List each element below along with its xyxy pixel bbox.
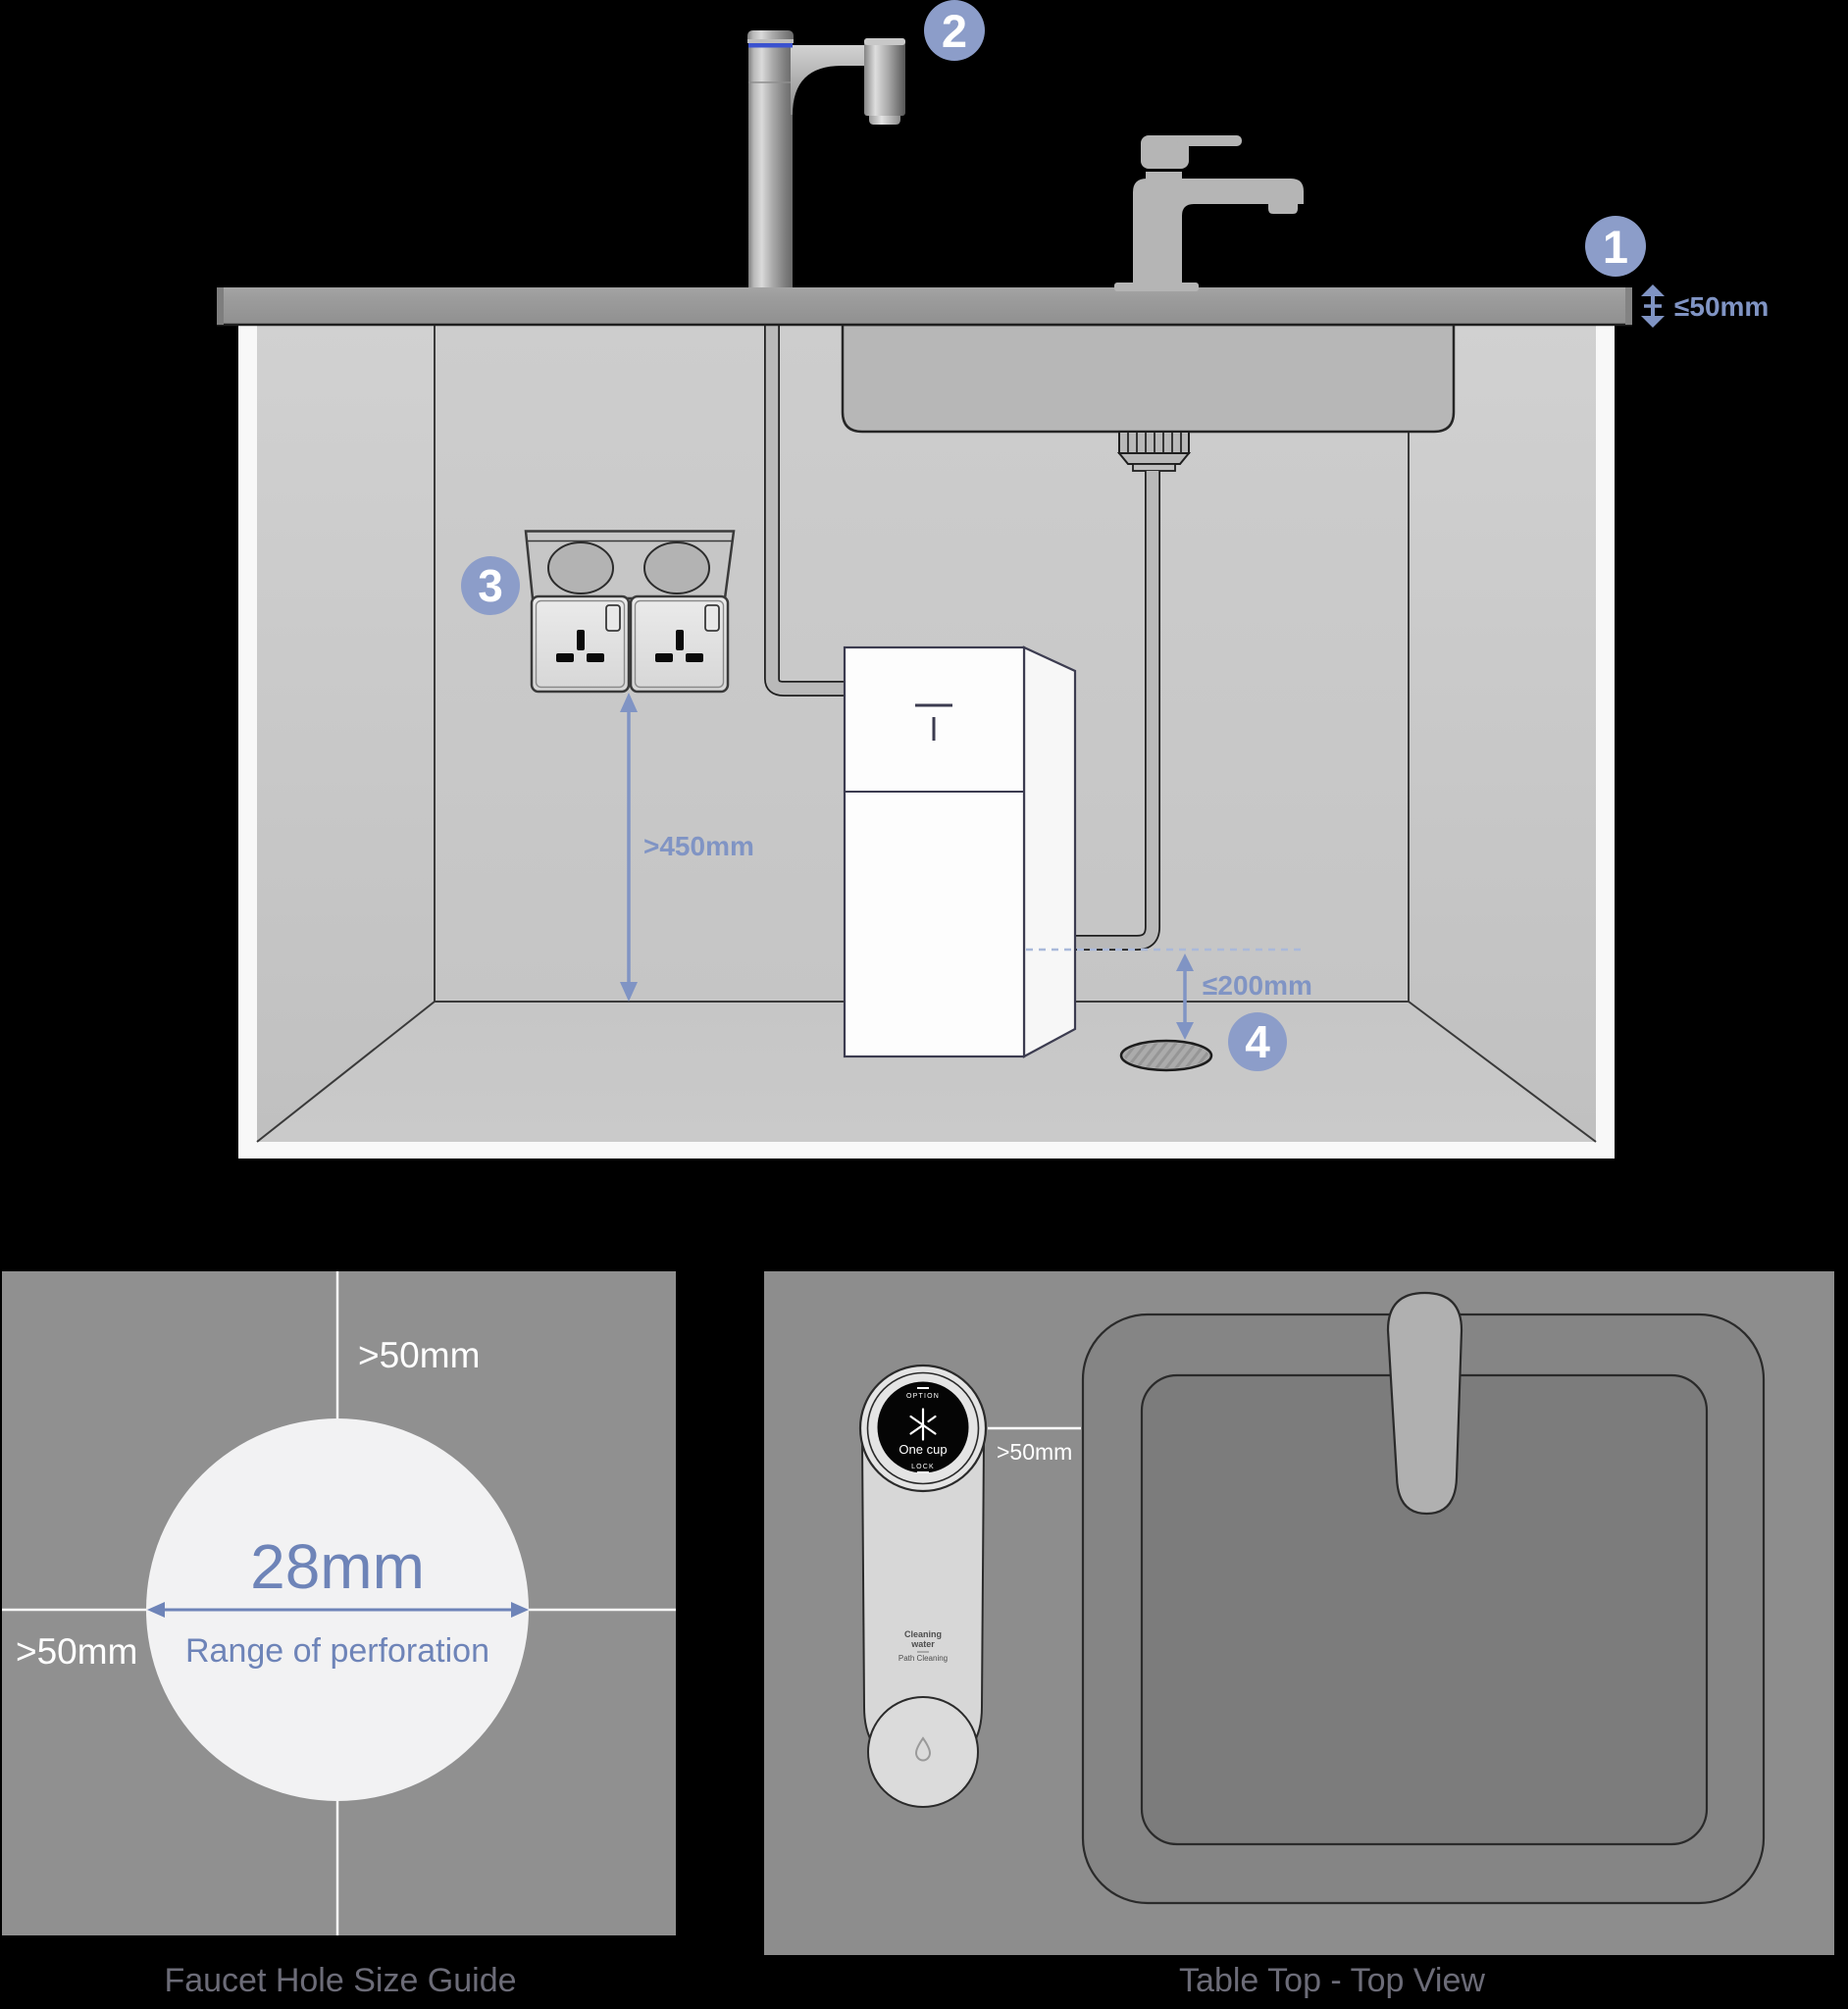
- svg-text:>50mm: >50mm: [997, 1439, 1072, 1465]
- svg-text:4: 4: [1245, 1016, 1270, 1067]
- svg-text:Cleaning: Cleaning: [904, 1629, 942, 1639]
- svg-text:28mm: 28mm: [250, 1531, 425, 1602]
- svg-text:water: water: [910, 1639, 935, 1649]
- svg-text:Faucet Hole Size Guide: Faucet Hole Size Guide: [164, 1962, 516, 1999]
- svg-text:Table Top - Top View: Table Top - Top View: [1179, 1962, 1485, 1999]
- svg-text:≤50mm: ≤50mm: [1674, 291, 1769, 322]
- svg-text:>50mm: >50mm: [358, 1335, 480, 1375]
- svg-text:OPTION: OPTION: [906, 1393, 940, 1400]
- svg-text:3: 3: [478, 560, 503, 611]
- svg-text:Path Cleaning: Path Cleaning: [898, 1654, 948, 1663]
- svg-text:2: 2: [942, 5, 967, 57]
- svg-text:>450mm: >450mm: [643, 831, 754, 861]
- svg-text:≤200mm: ≤200mm: [1203, 970, 1312, 1001]
- svg-text:One cup: One cup: [898, 1442, 947, 1457]
- svg-text:Range of perforation: Range of perforation: [185, 1632, 489, 1670]
- svg-text:LOCK: LOCK: [911, 1464, 935, 1470]
- svg-text:>50mm: >50mm: [16, 1631, 137, 1672]
- svg-text:1: 1: [1603, 221, 1628, 273]
